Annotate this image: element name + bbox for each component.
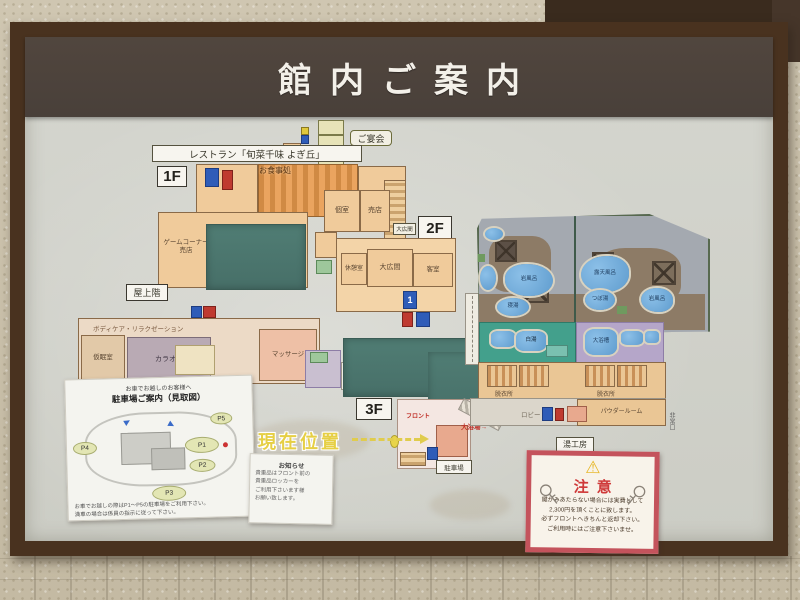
game-corner-room-label: ゲームコーナー <box>163 239 208 246</box>
parking-diagram: P4 P1 P2 P3 P5 <box>72 404 248 505</box>
womens-bath-marker <box>555 408 564 421</box>
indoor-pond <box>645 331 659 343</box>
open-air-bath-garden: 岩風呂 寝湯 露天風呂 つぼ湯 岩風呂 <box>477 214 710 334</box>
front-desk-text: フロント <box>406 411 430 420</box>
rest-room: 休憩室 <box>341 253 367 285</box>
bush <box>617 306 627 314</box>
stairs-cell <box>310 352 328 363</box>
nap-room: 仮眠室 <box>81 335 125 381</box>
current-location-label: 現在位置 <box>258 428 342 454</box>
elevator-marker: 1 <box>403 291 417 309</box>
small-pond <box>480 266 496 290</box>
powder-room: パウダールーム <box>577 399 666 426</box>
elevator-marker <box>427 447 438 460</box>
banquet-label: ご宴会 <box>350 130 392 146</box>
bush <box>477 254 485 262</box>
dressing-block: 脱衣所 脱衣所 <box>478 362 666 400</box>
private-room: 個室 <box>324 190 360 232</box>
lying-bath-pond: 寝湯 <box>497 298 529 316</box>
mens-bath-marker <box>416 312 430 327</box>
main-bath-pond: 大浴槽 <box>585 329 617 355</box>
relaxation-label: ボディケア・リラクゼーション <box>93 323 243 333</box>
womens-bath-marker <box>222 170 233 190</box>
marker-yellow <box>390 435 399 448</box>
white-bath-pond: 白湯 <box>516 331 546 351</box>
small-room <box>315 232 337 258</box>
corridor-to-bath <box>465 293 479 365</box>
small-room <box>318 120 344 135</box>
bath-hut <box>495 240 517 262</box>
notice-paper: お知らせ 貴重品はフロント前の 貴重品ロッカーを ご利用下さいます様 お願い致し… <box>248 453 333 525</box>
indoor-pond <box>621 331 643 345</box>
key-icon-right <box>622 482 648 512</box>
dressing-label: 脱衣所 <box>495 389 535 398</box>
mens-bath-marker <box>191 306 202 318</box>
inner-room <box>175 345 215 375</box>
open-air-bath-pond: 露天風呂 <box>581 256 629 292</box>
rock-bath-pond: 岩風呂 <box>641 288 673 312</box>
emergency-exit-label: 非常口 <box>667 412 676 430</box>
lobby-corridor: ロビー パウダールーム <box>470 398 666 426</box>
guest-room: 客室 <box>413 253 453 287</box>
mens-womens-divider <box>574 214 576 334</box>
sign-title: 館内ご案内 <box>260 53 538 102</box>
lockers <box>519 365 549 387</box>
mens-indoor-bath: 白湯 <box>479 322 576 364</box>
notice-line: お願い致します。 <box>255 494 327 504</box>
womens-bath-marker <box>203 306 216 318</box>
caution-line: ご利用時にはご注意下さいませ。 <box>535 525 650 536</box>
small-pond <box>485 228 503 240</box>
womens-indoor-bath: 大浴槽 <box>576 322 664 364</box>
counter <box>567 406 587 422</box>
stairs-cell <box>316 260 332 274</box>
caution-sign: ⚠ 注意 鍵がみあたらない場合には実費として 2,300円を頂くことに致します。… <box>525 450 659 554</box>
photo-of-facility-guide-sign: 館内ご案内 ご宴会 レストラン「旬菜千味 よぎ丘」 1F お食事処 ゲームコーナ… <box>0 0 800 600</box>
lockers <box>617 365 647 387</box>
mens-bath-marker <box>301 135 309 144</box>
rooftop-label: 屋上階 <box>126 284 168 301</box>
walk-path <box>472 296 473 362</box>
dressing-label: 脱衣所 <box>597 389 637 398</box>
board-stain <box>430 490 510 520</box>
rest-area-block: 休憩室 大広間 客室 <box>336 238 456 312</box>
building-footprint <box>151 447 186 470</box>
parking-lot-p3: P3 <box>152 485 186 501</box>
courtyard-roof <box>206 224 306 290</box>
floor-2f-badge: 2F <box>418 216 452 240</box>
relaxation-block: ボディケア・リラクゼーション 仮眠室 カラオケ マッサージ <box>78 318 320 384</box>
current-location-arrowhead <box>420 434 429 444</box>
floor-3f-badge: 3F <box>356 398 392 420</box>
lockers <box>585 365 615 387</box>
lockers <box>487 365 517 387</box>
indoor-tub <box>546 345 568 357</box>
stairs <box>400 452 426 466</box>
restaurant-name-label: レストラン「旬菜千味 よぎ丘」 <box>152 145 362 162</box>
hall-small-label: 大広間 <box>393 223 416 235</box>
key-icon-left <box>537 481 563 511</box>
marker-yellow <box>301 127 309 135</box>
indoor-pond <box>491 331 515 347</box>
mens-bath-marker <box>205 168 219 187</box>
parking-map-paper: お車でお越しのお客様へ 駐車場ご案内（見取図） P4 P1 P2 P3 P5 お… <box>64 375 256 522</box>
mens-bath-marker <box>542 407 553 421</box>
parking-box-label: 駐車場 <box>436 460 472 474</box>
rock-bath-pond: 岩風呂 <box>505 264 553 296</box>
bath-hut <box>652 261 676 285</box>
hall-room: 大広間 <box>367 249 413 287</box>
shop-room: 売店 <box>360 190 390 232</box>
pot-bath-pond: つぼ湯 <box>585 290 615 310</box>
sign-header: 館内ご案内 <box>25 37 773 117</box>
womens-bath-marker <box>402 312 413 327</box>
floor-1f-badge: 1F <box>157 166 187 187</box>
parking-lot-p5: P5 <box>210 412 232 425</box>
shop-label: 売店 <box>180 247 193 254</box>
current-location-arrow <box>352 438 420 441</box>
warning-icon: ⚠ <box>535 458 650 477</box>
you-are-here-dot <box>223 442 228 447</box>
wall-tile-seams <box>0 556 800 600</box>
